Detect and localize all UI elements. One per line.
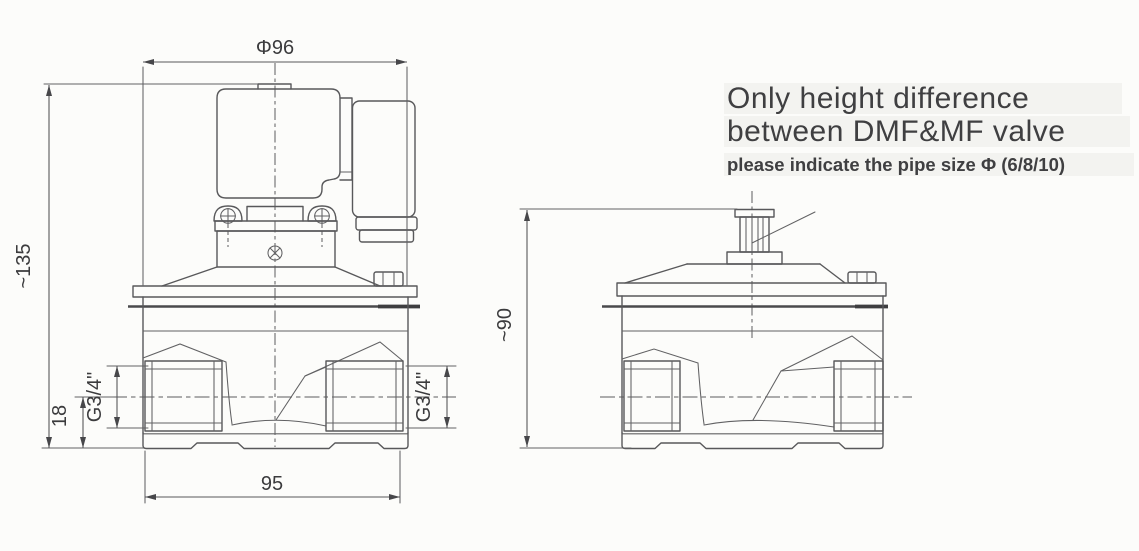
port-left: [145, 361, 222, 431]
dim-label-thread-right: G3/4": [413, 372, 435, 422]
valve-body: [622, 296, 883, 433]
body-contours: [622, 336, 883, 427]
note-line-2: between DMF&MF valve: [727, 115, 1065, 148]
port-left: [624, 361, 680, 431]
coil: [217, 84, 340, 198]
dim-overall-height: ~135: [13, 84, 257, 448]
front-view: Φ96 ~135 18 G3/4" G3/4" 95: [13, 37, 456, 503]
pipe-stub: [727, 210, 782, 265]
coil-bracket: [215, 207, 337, 232]
dim-side-height: ~90: [494, 209, 737, 448]
pipe-stub-cap: [735, 210, 774, 218]
dim-label-port-axis: 18: [49, 405, 71, 427]
dim-label-thread-left: G3/4": [84, 372, 106, 422]
mounting-screw-right: [308, 206, 336, 247]
diagram-svg: Φ96 ~135 18 G3/4" G3/4" 95: [0, 0, 1139, 551]
mounting-screw-left: [214, 206, 242, 247]
dim-label-diameter: Φ96: [256, 37, 294, 59]
bonnet: [162, 231, 380, 286]
port-peak-right: [305, 342, 403, 376]
dim-body-width: 95: [145, 451, 400, 503]
foot: [622, 433, 883, 449]
body-contours: [143, 342, 403, 426]
stub-base: [727, 252, 782, 264]
cable-gland: [356, 217, 417, 230]
side-view: ~90: [494, 191, 912, 449]
cable-gland-nut: [360, 230, 414, 242]
dim-label-height: ~135: [13, 243, 35, 288]
note-block: Only height difference between DMF&MF va…: [724, 82, 1134, 176]
hex-bolt: [848, 272, 876, 283]
port-peak-left: [143, 344, 226, 362]
note-line-3: please indicate the pipe size Φ (6/8/10): [727, 154, 1065, 175]
port-right: [834, 361, 883, 431]
note-line-1: Only height difference: [727, 82, 1029, 115]
dim-label-side-height: ~90: [494, 308, 516, 342]
port-right: [326, 361, 403, 431]
port-peak-right: [781, 336, 883, 371]
bonnet: [625, 264, 845, 283]
hex-bolt: [374, 272, 403, 286]
din-connector: [340, 98, 417, 242]
drawing-page: Φ96 ~135 18 G3/4" G3/4" 95: [0, 0, 1139, 551]
pipe-stub-ribs: [740, 217, 769, 252]
dim-label-width: 95: [261, 473, 283, 495]
